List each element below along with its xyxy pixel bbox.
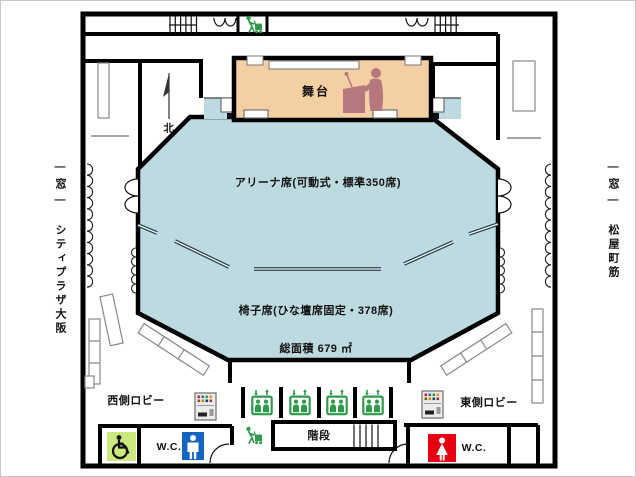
west-lobby-label: 西側ロビー <box>107 392 165 408</box>
vending-machine-icon <box>195 393 216 420</box>
womens-toilet-icon <box>428 434 456 462</box>
mens-toilet-icon <box>182 432 204 460</box>
floor-plan: 舞台 北 アリーナ席(可動式・標準350席) 椅子席(ひな壇席固定・378席) … <box>0 0 636 477</box>
east-window-label: ―窓― <box>605 161 621 211</box>
hall-area <box>138 117 498 360</box>
wheelchair-icon <box>107 432 136 461</box>
stage-area <box>234 56 431 120</box>
east-street-label: 松屋町筋 <box>605 224 621 280</box>
west-wc-label: W.C. <box>157 441 182 453</box>
floorplan-svg <box>1 1 636 477</box>
west-street-label: シティプラザ大阪 <box>52 224 68 336</box>
vending-machine-icon <box>422 391 443 418</box>
stairs-room <box>273 422 395 449</box>
stairs-label: 階段 <box>308 427 331 443</box>
total-area-label: 総面積 679 ㎡ <box>280 340 353 356</box>
arena-seats-label: アリーナ席(可動式・標準350席) <box>235 174 401 190</box>
west-window-label: ―窓― <box>52 161 68 211</box>
stage-label: 舞台 <box>302 83 330 100</box>
west-window-street-label: ―窓― シティプラザ大阪 <box>51 161 69 336</box>
east-lobby-label: 東側ロビー <box>460 394 518 410</box>
east-window-street-label: ―窓― 松屋町筋 <box>604 161 622 280</box>
north-label: 北 <box>164 121 175 136</box>
chair-seats-label: 椅子席(ひな壇席固定・378席) <box>239 302 394 318</box>
east-wc-label: W.C. <box>462 442 487 454</box>
